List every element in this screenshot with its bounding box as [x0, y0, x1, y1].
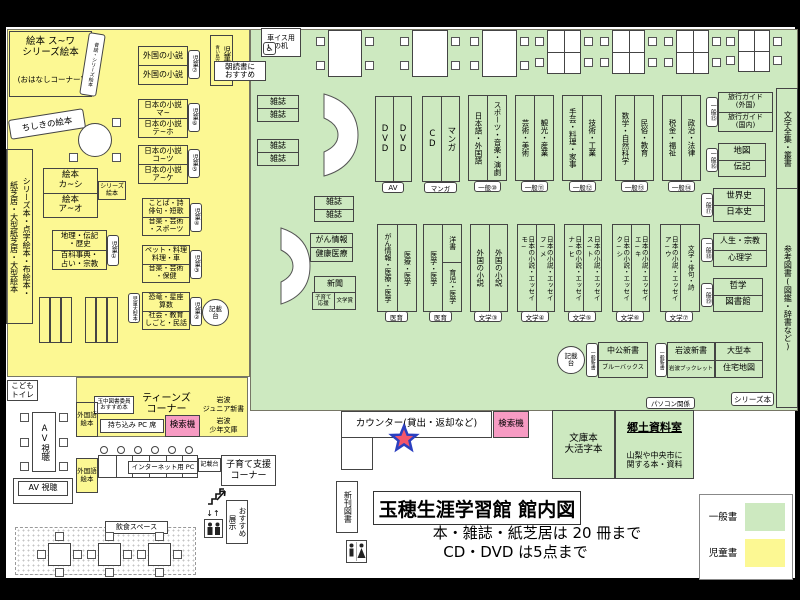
ippan-shinsho-tab-2: 一般新書 — [655, 343, 667, 377]
dining-table — [98, 543, 121, 566]
vertical-label: スポーツ・音楽・演劇 — [493, 101, 501, 176]
ippan-11-tab: 一般⑪ — [521, 181, 548, 192]
label-line: 住宅地図 — [723, 364, 755, 373]
label-line: 絵本 — [81, 476, 94, 483]
label-line: の机 — [274, 43, 288, 51]
nonfiction-shelf-12: 手芸・料理・家事技術・工業 — [562, 95, 602, 181]
stool — [100, 446, 108, 454]
vertical-label: 参考図書(図鑑・辞書など) — [783, 245, 792, 351]
mochikomi-pc-seat-box: 持ち込み PC 席 — [100, 419, 164, 433]
kyoryu-seiza-shelf: 恐竜・星座算数社会・教育しごと・民話 — [142, 292, 190, 330]
tab-label: 文学⑤ — [573, 312, 592, 322]
vertical-label: 育児・医学 — [448, 269, 456, 304]
nonfiction-shelf-13: 数学・自然科学民俗・教育 — [615, 95, 654, 181]
label-line: マ~ — [156, 109, 170, 117]
chair — [59, 438, 68, 447]
label-line: ジュニア新書 — [203, 405, 245, 413]
ippan-17-tab: 一般⑰ — [701, 193, 713, 217]
vertical-label: 児童⑤ — [191, 154, 197, 173]
label-line: (外国) — [736, 102, 755, 110]
vertical-label: 文学全集・叢書 — [783, 111, 792, 167]
cancer-info-health-shelf: がん情報健康医療 — [310, 233, 353, 262]
jp-fiction-shelf-7: 日本の小説・エッセイ ア~ウ文学・俳句・詩 — [660, 224, 700, 312]
ippan-12-tab: 一般⑫ — [569, 181, 596, 192]
iwanami-shonen-bunko-label: 岩波少年文庫 — [199, 416, 248, 435]
vertical-label: 医療・医学 — [403, 251, 411, 286]
vertical-label: 新刊図書 — [343, 491, 352, 523]
jido-3-tab: 児童③ — [190, 250, 202, 279]
chair — [400, 37, 409, 46]
jp-novels-kids-shelf-ma: 日本の小説マ~日本の小説テ~ホ — [138, 99, 188, 138]
label-line: ティーンズ — [142, 393, 191, 405]
ippan-15-tab: 一般⑮ — [706, 97, 718, 127]
kids-shelf-rect — [107, 297, 118, 343]
series-ehon-side-box: シリーズ絵本 — [98, 181, 126, 200]
label-line: コーナー — [147, 404, 187, 416]
vertical-label: 一般⑲ — [704, 286, 710, 304]
tab-label: シリーズ本 — [734, 394, 771, 405]
toilet-box — [346, 540, 367, 563]
av-tab: AV — [382, 182, 404, 193]
foreign-novels-kids-shelf: 外国の小説外国の小説 — [138, 46, 188, 85]
chair — [55, 532, 64, 541]
iwanami-junior-shinsho-label: 岩波ジュニア新書 — [199, 395, 248, 414]
label-line: 郷土資料室 — [627, 422, 682, 434]
jp-novels-kids-shelf-ko: 日本の小説コ~ツ日本の小説ア~ケ — [138, 145, 188, 184]
nonfiction-shelf-11: 芸術・美術観光・産業 — [515, 95, 554, 181]
chair — [155, 568, 164, 577]
tab-label: ちしきの絵本 — [21, 114, 73, 134]
chair — [773, 56, 782, 65]
vertical-label: 児童大型本 — [131, 296, 136, 321]
chair — [59, 462, 68, 471]
legend: 一般書 児童書 — [699, 494, 793, 580]
av-viewing-label-2: AV 視聴 — [18, 481, 68, 496]
label-line: 人生・宗教 — [720, 237, 760, 246]
vertical-label: DVD — [398, 124, 407, 154]
kosodate-bungakusho-shelf: 子育て応援文学賞 — [312, 292, 356, 310]
ippan-14-tab: 一般⑭ — [668, 181, 695, 192]
newspaper-shelf: 新聞 — [314, 276, 356, 293]
chair — [470, 37, 479, 46]
label-line: 関する本・資料 — [627, 461, 683, 470]
pc-related-tab: パソコン関係 — [646, 397, 695, 409]
label-line: しごと・民話 — [145, 320, 187, 328]
label-line: カ~シ — [58, 181, 82, 191]
tab-label: 文学④ — [526, 312, 545, 322]
ippan-18-tab: 一般⑱ — [701, 238, 713, 262]
manga-tab: マンガ — [424, 182, 457, 193]
tab-label: 文学⑥ — [621, 312, 640, 322]
label-line: がん情報 — [316, 236, 348, 245]
chair — [726, 56, 735, 65]
label-line: 雑誌 — [326, 211, 342, 220]
chair — [664, 58, 673, 67]
label-line: 雑誌 — [270, 142, 286, 151]
jido-4-tab: 児童④ — [190, 203, 202, 232]
label-line: 占い・宗教 — [61, 260, 99, 268]
vertical-label: 日本語・外国語 — [474, 112, 482, 165]
label-line: 世界史 — [726, 192, 752, 202]
ehon-shelf: 絵本カ~シ絵本ア~オ — [43, 168, 98, 218]
chuko-shinsho-shelf: 中公新書ブルーバックス — [598, 342, 648, 378]
magazine-shelves-1: 雑誌雑誌 — [257, 95, 299, 122]
large-books-shelf: 大型本住宅地図 — [715, 342, 763, 378]
map-biography-shelf: 地図伝記 — [718, 143, 766, 177]
legend-label-children: 児童書 — [703, 545, 743, 559]
kyodo-shiryo-room: 郷土資料室山梨や中央市に関する本・資料 — [615, 410, 694, 479]
chair — [173, 550, 182, 559]
dining-table — [48, 543, 71, 566]
vertical-label: 外国の小説 — [494, 249, 502, 287]
kisaidai-label-internet: 記載台 — [198, 458, 221, 472]
foreign-fiction-shelf: 外国の小説外国の小説 — [470, 224, 508, 312]
label-line: 算数 — [159, 302, 173, 310]
vertical-label: 児童② — [193, 302, 199, 321]
reading-table — [412, 30, 448, 77]
chair — [664, 37, 673, 46]
label-line: (国内) — [736, 122, 755, 130]
vertical-label: 文学・俳句・詩 — [686, 245, 693, 291]
medical-shelf-1: がん情報・医療・医学医療・医学 — [377, 224, 417, 312]
search-terminal-teens: 検索機 — [165, 415, 200, 437]
label-line: トイレ — [11, 391, 34, 399]
reading-table — [547, 30, 581, 74]
vertical-label: 税金・福祉 — [668, 119, 676, 157]
search-terminal-counter: 検索機 — [493, 411, 529, 438]
label-line: 飲食スペース — [116, 524, 157, 532]
nonfiction-shelf-10: 日本語・外国語スポーツ・音楽・演劇 — [468, 95, 507, 181]
ippan-10-tab: 一般⑩ — [474, 181, 501, 192]
bungaku-4-tab: 文学④ — [521, 311, 549, 322]
chair — [105, 532, 114, 541]
vertical-label: 数学・自然科学 — [621, 112, 629, 165]
label-line: 岩波新書 — [675, 347, 707, 356]
label-line: (おはなしコーナー) — [18, 76, 84, 84]
label-line: 俳句・短歌 — [149, 208, 184, 216]
stool — [185, 446, 193, 454]
kosodate-support-corner-box: 子育て支援コーナー — [221, 455, 276, 486]
reading-table — [612, 30, 645, 74]
chair — [451, 61, 460, 70]
label-line: 岩波 — [217, 396, 231, 404]
label-line: 中公新書 — [607, 347, 639, 356]
chair — [69, 153, 78, 162]
foreign-picture-books-shelf-1: 外国語絵本 — [76, 402, 98, 437]
reading-table — [482, 30, 517, 77]
label-line: おすすめ — [225, 71, 255, 79]
reference-books-shelf: 文学全集・叢書参考図書(図鑑・辞書など) — [776, 88, 798, 408]
chair — [112, 153, 121, 162]
label-line: 検索機 — [498, 420, 524, 430]
ippan-16-tab: 一般⑯ — [706, 148, 718, 172]
label-line: 心理学 — [728, 254, 752, 263]
bungaku-6-tab: 文学⑥ — [616, 311, 644, 322]
chair — [105, 568, 114, 577]
kids-shelf-rect — [61, 297, 72, 343]
jido-5-tab: 児童⑤ — [188, 149, 200, 178]
chair — [73, 550, 82, 559]
vertical-label: 紙芝居・大型紙芝居・大型絵本 — [9, 181, 18, 293]
label-line: 検索機 — [170, 421, 196, 431]
medical-shelf-2: 医学・医学洋書育児・医学 — [423, 224, 462, 312]
label-line: ・保健 — [156, 273, 177, 281]
vertical-label: 児童⑥ — [191, 108, 197, 127]
kisaidai-circle-children: 記載台 — [202, 299, 229, 326]
jido-1-tab: 児童① — [107, 235, 119, 266]
label-line: ブルーバックス — [602, 365, 644, 372]
nonfiction-shelf-14: 税金・福祉政治・法律 — [662, 95, 701, 181]
vertical-label: 日本の小説・エッセイ エ~キ — [633, 236, 647, 301]
label-line: 地図 — [733, 147, 750, 157]
label-line: カウンター(貸出・返却など) — [356, 419, 477, 430]
internet-pc-label: インターネット用 PC — [128, 461, 198, 474]
chair — [20, 413, 29, 422]
magazine-shelves-3: 雑誌雑誌 — [314, 196, 354, 222]
label-line: ↓↑ — [206, 509, 219, 518]
vertical-label: おすすめ — [238, 507, 246, 537]
label-line: 岩波 — [217, 417, 231, 425]
vertical-label: 日本の小説・エッセイ モ~ — [520, 236, 534, 301]
label-line: 図書館 — [725, 298, 751, 308]
label-line: ・スポーツ — [149, 226, 184, 234]
label-line: 外国の小説 — [143, 52, 183, 61]
chair — [584, 58, 593, 67]
series-braille-large-books-shelf: 紙芝居・大型紙芝居・大型絵本シリーズ本・点字絵本・布絵本・ — [6, 149, 33, 324]
bungaku-7-tab: 文学⑦ — [665, 311, 693, 322]
tab-label: マンガ — [431, 183, 451, 193]
chair — [316, 37, 325, 46]
page-title-text: 玉穂生涯学習館 館内図 — [379, 495, 576, 522]
vertical-label: 観光・産業 — [540, 119, 548, 157]
vertical-label: CD — [427, 129, 436, 149]
loan-limit-note-cd-dvd: CD・DVD は5点まで — [408, 541, 623, 562]
label-line: 文庫本 — [569, 434, 598, 445]
reading-table — [676, 30, 709, 74]
legend-swatch-general — [745, 503, 785, 531]
chair — [584, 37, 593, 46]
label-line: おすすめ本 — [100, 405, 128, 411]
iwanami-shinsho-shelf: 岩波新書岩波ブックレット — [667, 342, 715, 378]
legend-label-general: 一般書 — [703, 509, 743, 523]
label-line: 台 — [212, 313, 219, 320]
label-line: 雑誌 — [270, 98, 286, 107]
label-line: 文学賞 — [336, 298, 353, 304]
vertical-label: 一般⑯ — [709, 151, 715, 169]
ippan-13-tab: 一般⑬ — [621, 181, 648, 192]
reading-table — [328, 30, 362, 77]
vertical-label: 医学・医学 — [429, 251, 437, 286]
tab-label: AV — [388, 184, 397, 192]
philosophy-shelf: 哲学図書館 — [713, 278, 763, 312]
vertical-label: 日本の小説・エッセイ ク~シ — [615, 236, 629, 301]
legend-swatch-children — [745, 539, 785, 567]
bungaku-3-tab: 文学③ — [474, 311, 502, 322]
jp-fiction-shelf-4: 日本の小説・エッセイ モ~日本の小説・エッセイ フ~メ — [517, 224, 555, 312]
ippan-shinsho-tab-1: 一般新書 — [586, 343, 598, 377]
chair — [470, 61, 479, 70]
kids-shelf-rect — [85, 297, 96, 343]
chair — [648, 37, 657, 46]
tab-label: 医育 — [390, 312, 403, 322]
jido-6-tab: 児童⑥ — [188, 103, 200, 132]
jido-7-tab: 児童⑦ — [188, 50, 200, 79]
vertical-label: 児童③ — [193, 255, 199, 274]
chair — [20, 438, 29, 447]
label-line: ア~ケ — [152, 174, 173, 182]
label-line: ア~オ — [58, 205, 82, 215]
tab-label: ♿ — [265, 44, 273, 54]
tab-label: 文学⑦ — [670, 312, 689, 322]
teens-corner-label: ティーンズコーナー — [134, 393, 199, 415]
counter-leg — [341, 437, 373, 470]
stool — [168, 446, 176, 454]
vertical-label: 洋書 — [448, 236, 456, 250]
vertical-label: 一般新書 — [589, 350, 594, 370]
vertical-label: 外国の小説 — [476, 249, 484, 287]
label-line: 絵本 — [81, 420, 94, 427]
chair — [365, 61, 374, 70]
vertical-label: 一般⑱ — [704, 241, 710, 259]
vertical-label: シリーズ本・点字絵本・布絵本・ — [21, 177, 30, 297]
library-floor-map: 絵本 ス~ワシリーズ絵本(おはなしコーナー)昔話・シリーズ絵本ちしきの絵本紙芝居… — [0, 0, 800, 600]
av-viewing-table: AV視聴 — [32, 412, 56, 472]
counter-desk: カウンター(貸出・返却など) — [341, 411, 492, 438]
asadokusho-recommend-box: 朝読書におすすめ — [214, 61, 266, 81]
stool — [151, 446, 159, 454]
label-line: 伝記 — [733, 163, 750, 173]
chair — [712, 58, 721, 67]
vertical-label: マンガ — [446, 126, 455, 152]
osusume-tenji-shelf: 展示おすすめ — [226, 500, 248, 544]
chair — [155, 532, 164, 541]
ippan-19-tab: 一般⑲ — [701, 283, 713, 307]
chair — [648, 58, 657, 67]
vertical-label: 児童④ — [193, 208, 199, 227]
life-religion-shelf: 人生・宗教心理学 — [713, 233, 767, 267]
series-books-tab: シリーズ本 — [731, 392, 774, 406]
bunkobon-room: 文庫本大活字本 — [552, 410, 615, 479]
label-line: 持ち込み PC 席 — [108, 422, 157, 430]
label-line: 子育て支援 — [226, 460, 271, 470]
vertical-label: 児童① — [110, 241, 116, 260]
chair — [37, 550, 46, 559]
vertical-label: 芸術・美術 — [521, 119, 529, 157]
chair — [137, 550, 146, 559]
dining-table — [148, 543, 171, 566]
label-line: 日本史 — [726, 208, 752, 218]
new-books-shelf: 新刊図書 — [336, 481, 358, 533]
label-line: シリーズ絵本 — [22, 48, 79, 59]
tab-label: 医育 — [434, 312, 447, 322]
page-title: 玉穂生涯学習館 館内図 — [373, 491, 581, 525]
loan-limit-note-books: 本・雑誌・紙芝居は 20 冊まで — [397, 522, 677, 543]
label-line: ・歴史 — [68, 240, 91, 248]
iiku-tab-1: 医育 — [385, 311, 408, 322]
label-line: 健康医療 — [316, 250, 348, 259]
wheelchair-icon: ♿ — [263, 42, 276, 55]
chair — [773, 37, 782, 46]
chair — [316, 61, 325, 70]
jido-2-tab: 児童② — [190, 297, 202, 326]
tab-label: 一般⑬ — [625, 182, 645, 192]
vertical-label: 展示 — [228, 515, 236, 530]
tab-label: 一般⑫ — [573, 182, 593, 192]
chair — [59, 413, 68, 422]
chair — [400, 61, 409, 70]
label-line: 大活字本 — [564, 445, 602, 456]
vertical-label: がん情報・医療・医学 — [383, 233, 391, 303]
vertical-label: 一般⑮ — [709, 103, 715, 121]
world-history-shelf: 世界史日本史 — [713, 188, 765, 222]
chair — [712, 37, 721, 46]
label-line: 雑誌 — [270, 111, 286, 120]
elevator-box — [204, 519, 223, 538]
bungaku-5-tab: 文学⑤ — [568, 311, 596, 322]
iiku-tab-2: 医育 — [429, 311, 452, 322]
pet-ryori-shelf: ペット・料理料理・車音楽・芸術・保健 — [142, 245, 190, 283]
label-line: コ~ツ — [152, 155, 173, 163]
label-line: インターネット用 PC — [132, 464, 195, 471]
chair — [123, 550, 132, 559]
tab-label: 文学③ — [479, 312, 498, 322]
vertical-label: 日本の小説・エッセイ ス~ト — [585, 236, 599, 301]
kids-shelf-rect — [39, 297, 50, 343]
vertical-label: 政治・法律 — [687, 119, 695, 157]
kids-shelf-rect — [50, 297, 61, 343]
chair — [600, 37, 609, 46]
chiri-denki-shelf: 地理・伝記・歴史百科事典・占い・宗教 — [52, 230, 107, 270]
vertical-label: 日本の小説・エッセイ ナ~ヒ — [567, 236, 581, 301]
chair — [112, 118, 121, 127]
foreign-picture-books-shelf-2: 外国語絵本 — [76, 458, 98, 493]
elevator-arrows-label: ↓↑ — [202, 509, 224, 519]
label-line: AV 視聴 — [29, 484, 58, 493]
cd-manga-shelf: CDマンガ — [422, 96, 460, 182]
tab-label: 一般⑭ — [672, 182, 692, 192]
kids-shelf-rect — [96, 297, 107, 343]
chair — [87, 550, 96, 559]
vertical-label: 技術・工業 — [588, 119, 596, 157]
chair — [20, 462, 29, 471]
vertical-label: 一般新書 — [658, 350, 663, 370]
label-line: 記載台 — [200, 462, 218, 469]
label-line: 岩波ブックレット — [669, 366, 713, 372]
chair — [600, 58, 609, 67]
label-line: 応援 — [318, 301, 329, 307]
label-line: 絵本 — [106, 191, 118, 198]
label-line: 大型本 — [727, 347, 751, 356]
label-line: 哲学 — [729, 282, 746, 292]
magazine-shelves-2: 雑誌雑誌 — [257, 139, 299, 166]
vertical-label: 日本の小説・エッセイ フ~メ — [538, 236, 552, 301]
label-line: 雑誌 — [326, 198, 342, 207]
kotoba-shi-shelf: ことば・詩俳句・短歌音楽・芸術・スポーツ — [142, 198, 190, 236]
vertical-label: DVD — [380, 124, 389, 154]
vertical-label: 日本の小説・エッセイ ア~ウ — [663, 236, 677, 301]
chair — [365, 37, 374, 46]
chair — [520, 37, 529, 46]
stool — [117, 446, 125, 454]
chair — [520, 61, 529, 70]
travel-guide-shelf: 旅行ガイド(外国)旅行ガイド(国内) — [718, 92, 773, 132]
tab-label: 一般⑪ — [525, 182, 545, 192]
label-line: コーナー — [230, 471, 266, 481]
chair — [55, 568, 64, 577]
jido-ogata-tab: 児童大型本 — [128, 293, 140, 323]
label-line: 少年文庫 — [210, 426, 238, 434]
vertical-label: 一般⑰ — [704, 196, 710, 214]
